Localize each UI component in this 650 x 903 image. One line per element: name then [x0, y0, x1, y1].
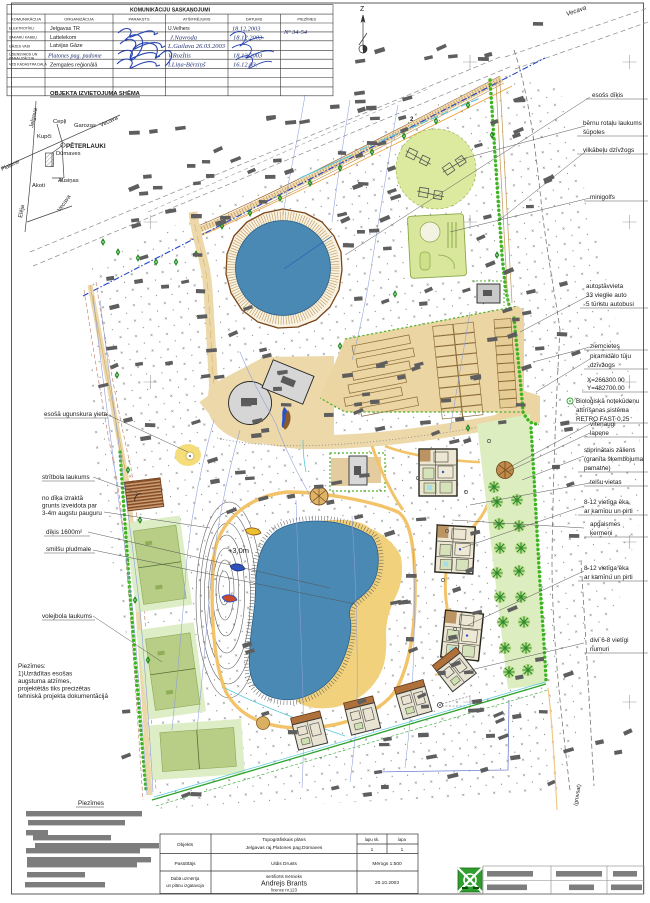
svg-text:licence nr.123: licence nr.123	[271, 888, 298, 893]
svg-text:minigolfs: minigolfs	[590, 194, 615, 201]
svg-text:telšu vietas: telšu vietas	[590, 479, 622, 486]
svg-text:volejbola laukums: volejbola laukums	[42, 613, 92, 620]
svg-text:VZD KADASTRA DAĻA: VZD KADASTRA DAĻA	[9, 63, 47, 67]
svg-text:Cepļi: Cepļi	[53, 119, 66, 125]
svg-text:Y=482700.00: Y=482700.00	[587, 385, 625, 392]
svg-text:3-4m augstu pauguru: 3-4m augstu pauguru	[42, 510, 102, 517]
svg-text:+3,0m: +3,0m	[228, 546, 249, 555]
svg-text:projektētās tiks precizētas: projektētās tiks precizētas	[18, 686, 90, 693]
svg-text:Zemgales reģionālā: Zemgales reģionālā	[50, 61, 97, 68]
svg-text:8-12 vietīga ēka: 8-12 vietīga ēka	[584, 499, 629, 506]
svg-text:Mērogs 1:500: Mērogs 1:500	[372, 861, 402, 867]
svg-text:smilšu pludmale: smilšu pludmale	[46, 546, 92, 553]
svg-text:attīrīšanas sistēma: attīrīšanas sistēma	[576, 407, 629, 414]
svg-text:vilkābeļu dzīvžogs: vilkābeļu dzīvžogs	[583, 147, 634, 154]
svg-text:Jelgavas TR: Jelgavas TR	[50, 26, 80, 32]
svg-text:Ausiņas: Ausiņas	[58, 178, 79, 184]
svg-text:J.Navroda: J.Navroda	[170, 35, 197, 42]
svg-text:piramidālo tūju: piramidālo tūju	[590, 353, 631, 360]
svg-text:DATUMS: DATUMS	[246, 16, 263, 21]
svg-text:vīteņaugi: vīteņaugi	[590, 421, 616, 428]
svg-text:KOMUNIKĀCIJU SASKAŅOJUMI: KOMUNIKĀCIJU SASKAŅOJUMI	[130, 7, 211, 14]
svg-text:sertificēts mērnieks: sertificēts mērnieks	[266, 874, 302, 879]
svg-text:un plānu izgatavoja: un plānu izgatavoja	[166, 883, 204, 888]
svg-text:ORGANIZĀCIJA: ORGANIZĀCIJA	[64, 16, 94, 21]
svg-text:bērnu rotaļu laukums: bērnu rotaļu laukums	[583, 120, 642, 127]
svg-text:Nº 34-54: Nº 34-54	[283, 29, 308, 36]
svg-text:Objekts: Objekts	[177, 842, 194, 848]
svg-text:Akoti: Akoti	[32, 183, 45, 189]
svg-text:pamatne): pamatne)	[584, 465, 611, 472]
svg-text:GĀZES VADI: GĀZES VADI	[9, 44, 30, 48]
svg-text:Pasūtītājs: Pasūtītājs	[174, 861, 196, 867]
svg-text:lapu sk.: lapu sk.	[365, 837, 379, 842]
svg-text:1: 1	[371, 847, 374, 853]
svg-text:ELEKTROTĪKLI: ELEKTROTĪKLI	[9, 27, 34, 31]
svg-text:16.12.03.: 16.12.03.	[233, 62, 258, 69]
svg-text:lapene: lapene	[590, 430, 609, 437]
svg-text:U.Velhers: U.Velhers	[168, 26, 190, 32]
svg-text:lapa: lapa	[398, 837, 407, 842]
svg-text:SAKARU KABEĻI: SAKARU KABEĻI	[9, 35, 37, 39]
svg-text:tehniskā projekta dokumentācij: tehniskā projekta dokumentācijā	[18, 693, 108, 700]
svg-text:no dīķa izraktā: no dīķa izraktā	[42, 495, 83, 502]
svg-text:grunts izveidota par: grunts izveidota par	[42, 503, 97, 510]
svg-text:OBJEKTA IZVIETOJUMA SHĒMA: OBJEKTA IZVIETOJUMA SHĒMA	[50, 90, 141, 97]
svg-text:apgaismes: apgaismes	[590, 521, 620, 528]
svg-text:1)Uzrādītas esošas: 1)Uzrādītas esošas	[18, 671, 72, 678]
svg-text:KANALIZĀCIJA: KANALIZĀCIJA	[9, 57, 35, 61]
svg-text:X=266300.00: X=266300.00	[587, 377, 625, 384]
svg-text:šūpoles: šūpoles	[583, 129, 605, 136]
svg-text:strītbola laukums: strītbola laukums	[42, 474, 90, 481]
svg-text:Latvijas Gāze: Latvijas Gāze	[50, 43, 83, 49]
svg-text:PIEZĪMES: PIEZĪMES	[297, 16, 316, 21]
svg-text:esošs dīķis: esošs dīķis	[592, 92, 623, 99]
svg-text:ar kamīnu un pirti: ar kamīnu un pirti	[584, 574, 633, 581]
svg-text:Z: Z	[360, 6, 365, 13]
svg-text:5 tūristu autobusi: 5 tūristu autobusi	[586, 301, 634, 308]
svg-text:KOMUNIKĀCIJA: KOMUNIKĀCIJA	[11, 16, 41, 21]
svg-text:L.Gailava 26.03.2003: L.Gailava 26.03.2003	[167, 43, 226, 50]
svg-text:ziemcietes: ziemcietes	[590, 343, 620, 350]
svg-text:1: 1	[401, 847, 404, 853]
svg-text:Garozas: Garozas	[74, 123, 96, 129]
svg-text:autostāvvieta: autostāvvieta	[586, 283, 624, 290]
svg-text:numuri: numuri	[590, 646, 609, 653]
svg-text:augstuma atzīmes,: augstuma atzīmes,	[18, 678, 71, 685]
svg-text:ATŠIFRĒJUMS: ATŠIFRĒJUMS	[183, 16, 211, 21]
svg-text:esošā ugunskura vieta: esošā ugunskura vieta	[44, 411, 108, 418]
svg-text:Piezīmes: Piezīmes	[78, 800, 104, 807]
svg-text:Uldis Drusts: Uldis Drusts	[271, 861, 297, 867]
svg-text:PARAKSTS: PARAKSTS	[128, 16, 149, 21]
svg-text:Andrejs Brants: Andrejs Brants	[261, 881, 307, 888]
svg-text:Dabā uzmērīja: Dabā uzmērīja	[171, 876, 200, 881]
svg-text:(granīta šķembojuma: (granīta šķembojuma	[584, 456, 644, 463]
svg-text:Platones pag. padome: Platones pag. padome	[47, 54, 102, 60]
svg-text:Lattelekom: Lattelekom	[50, 35, 77, 41]
svg-text:PĒTERLAUKI: PĒTERLAUKI	[66, 143, 106, 150]
svg-text:Dūmaves: Dūmaves	[56, 151, 81, 157]
svg-text:33 vieglie auto: 33 vieglie auto	[586, 292, 627, 299]
svg-text:stiprinātais zāliens: stiprinātais zāliens	[584, 447, 635, 454]
svg-text:ar kamīnu un pirti: ar kamīnu un pirti	[584, 508, 633, 515]
svg-text:I.Liņa-Bērziņš: I.Liņa-Bērziņš	[167, 62, 206, 69]
svg-text:divi 6-8 vietīgi: divi 6-8 vietīgi	[590, 637, 629, 644]
svg-text:18.12.2003: 18.12.2003	[233, 35, 263, 42]
svg-text:20.10.2003: 20.10.2003	[375, 880, 399, 886]
svg-text:dīķis 1600m²: dīķis 1600m²	[46, 529, 82, 536]
svg-text:Topogrāfiskais plāns: Topogrāfiskais plāns	[262, 837, 306, 843]
svg-text:Piezīmes:: Piezīmes:	[18, 663, 46, 670]
svg-text:Bioloģiskā notekūdeņu: Bioloģiskā notekūdeņu	[576, 397, 640, 405]
svg-text:18.12.2003: 18.12.2003	[232, 26, 260, 33]
svg-text:8-12 vietīga ēka: 8-12 vietīga ēka	[584, 565, 629, 572]
svg-text:Kupči: Kupči	[37, 134, 52, 140]
svg-text:dzīvžogs: dzīvžogs	[590, 362, 615, 369]
svg-text:ķermeņi: ķermeņi	[590, 530, 612, 537]
svg-text:Jelgavas raj.Platones pag.Dūma: Jelgavas raj.Platones pag.Dūmaves	[246, 845, 323, 851]
